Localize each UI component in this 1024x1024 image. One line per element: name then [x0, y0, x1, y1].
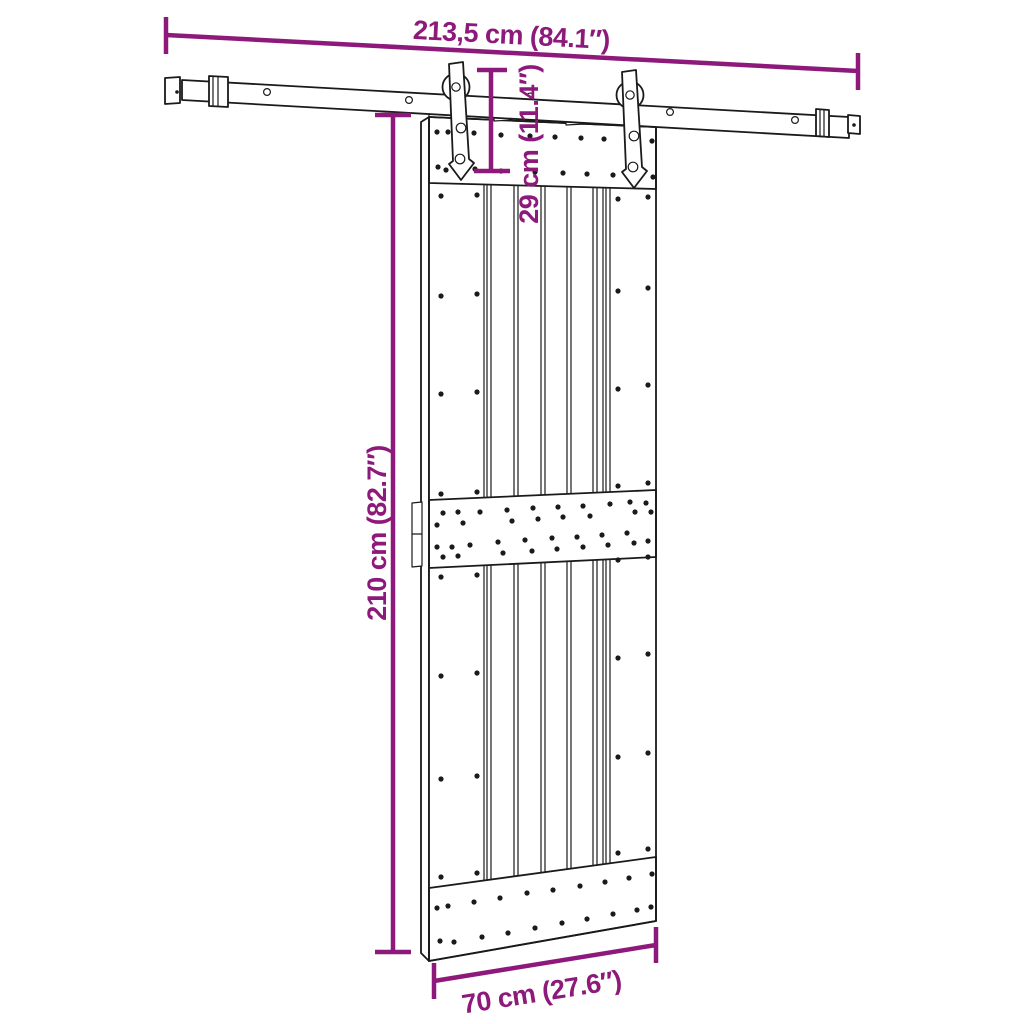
- screw-dot: [535, 516, 540, 521]
- screw-dot: [438, 673, 443, 678]
- screw-dot: [645, 382, 650, 387]
- screw-dot: [605, 542, 610, 547]
- screw-dot: [645, 194, 650, 199]
- screw-dot: [434, 522, 439, 527]
- strap-bolt-icon: [456, 123, 466, 133]
- screw-dot: [497, 895, 502, 900]
- screw-dot: [532, 925, 537, 930]
- dimension-door-height: 210 cm (82.7″): [362, 115, 411, 952]
- screw-dot: [560, 514, 565, 519]
- screw-dot: [645, 480, 650, 485]
- screw-dot: [584, 916, 589, 921]
- screw-dot: [649, 138, 654, 143]
- diagram-canvas: 213,5 cm (84.1″) 29 cm (11.4″) 210 cm (8…: [0, 0, 1024, 1024]
- screw-dot: [438, 776, 443, 781]
- screw-dot: [435, 164, 440, 169]
- screw-dot: [438, 193, 443, 198]
- screw-dot: [474, 489, 479, 494]
- screw-dot: [552, 134, 557, 139]
- screw-dot: [631, 540, 636, 545]
- screw-dot: [560, 170, 565, 175]
- rail-hole: [406, 97, 413, 104]
- screw-dot: [445, 129, 450, 134]
- screw-dot: [648, 509, 653, 514]
- rail-cap-screw-right: [852, 123, 856, 127]
- screw-dot: [434, 129, 439, 134]
- screw-dot: [474, 870, 479, 875]
- screw-dot: [615, 386, 620, 391]
- screw-dot: [471, 130, 476, 135]
- screw-dot: [529, 548, 534, 553]
- screw-dot: [434, 905, 439, 910]
- screw-dot: [474, 670, 479, 675]
- screw-dot: [578, 135, 583, 140]
- sliding-barn-door-dimension-diagram: 213,5 cm (84.1″) 29 cm (11.4″) 210 cm (8…: [0, 0, 1024, 1024]
- strap-bolt-icon: [455, 154, 465, 164]
- screw-dot: [645, 846, 650, 851]
- screw-dot: [474, 192, 479, 197]
- screw-dot: [643, 500, 648, 505]
- screw-dot: [624, 530, 629, 535]
- screw-dot: [455, 553, 460, 558]
- screw-dot: [500, 550, 505, 555]
- axle-bolt-icon: [626, 91, 634, 99]
- screw-dot: [474, 572, 479, 577]
- screw-dot: [467, 542, 472, 547]
- screw-dot: [440, 510, 445, 515]
- screw-dot: [474, 773, 479, 778]
- screw-dot: [634, 907, 639, 912]
- screw-dot: [498, 132, 503, 137]
- screw-dot: [645, 750, 650, 755]
- screw-dot: [649, 871, 654, 876]
- rail-cap-screw-left: [175, 90, 179, 94]
- rail-hole: [264, 89, 271, 96]
- screw-dot: [451, 939, 456, 944]
- door-handle: [412, 502, 422, 567]
- screw-dot: [602, 879, 607, 884]
- screw-dot: [460, 520, 465, 525]
- dimension-door-height-label: 210 cm (82.7″): [362, 445, 392, 621]
- screw-dot: [554, 546, 559, 551]
- screw-dot: [524, 890, 529, 895]
- screw-dot: [509, 518, 514, 523]
- screw-dot: [474, 291, 479, 296]
- screw-dot: [438, 491, 443, 496]
- screw-dot: [443, 167, 448, 172]
- screw-dot: [522, 537, 527, 542]
- screw-dot: [615, 288, 620, 293]
- screw-dot: [477, 509, 482, 514]
- screw-dot: [587, 513, 592, 518]
- screw-dot: [474, 389, 479, 394]
- screw-dot: [645, 538, 650, 543]
- screw-dot: [438, 391, 443, 396]
- screw-dot: [574, 534, 579, 539]
- screw-dot: [455, 509, 460, 514]
- screw-dot: [615, 557, 620, 562]
- dimension-hanger-height-label: 29 cm (11.4″): [514, 64, 544, 224]
- screw-dot: [580, 544, 585, 549]
- rail-hole: [667, 109, 674, 116]
- screw-dot: [599, 532, 604, 537]
- screw-dot: [471, 899, 476, 904]
- rail-hole: [792, 117, 799, 124]
- screw-dot: [648, 904, 653, 909]
- dimension-rail-width: 213,5 cm (84.1″): [166, 15, 858, 90]
- screw-dot: [626, 875, 631, 880]
- screw-dot: [615, 754, 620, 759]
- screw-dot: [438, 874, 443, 879]
- screw-dot: [645, 285, 650, 290]
- screw-dot: [627, 499, 632, 504]
- screw-dot: [632, 509, 637, 514]
- screw-dot: [610, 172, 615, 177]
- screw-dot: [505, 930, 510, 935]
- screw-dot: [580, 503, 585, 508]
- screw-dot: [550, 887, 555, 892]
- screw-dot: [449, 544, 454, 549]
- screw-dot: [577, 883, 582, 888]
- rail-stopper-right: [816, 109, 829, 137]
- screw-dot: [615, 483, 620, 488]
- screw-dot: [601, 136, 606, 141]
- screw-dot: [555, 504, 560, 509]
- screw-dot: [437, 938, 442, 943]
- screw-dot: [479, 934, 484, 939]
- middle-rail-board: [429, 490, 656, 568]
- screw-dot: [438, 574, 443, 579]
- screw-dot: [645, 651, 650, 656]
- screw-dot: [650, 174, 655, 179]
- screw-dot: [645, 554, 650, 559]
- screw-dot: [434, 544, 439, 549]
- screw-dot: [530, 505, 535, 510]
- screw-dot: [495, 539, 500, 544]
- screw-dot: [615, 655, 620, 660]
- screw-dot: [549, 535, 554, 540]
- screw-dot: [615, 196, 620, 201]
- strap-bolt-icon: [629, 131, 639, 141]
- screw-dot: [610, 911, 615, 916]
- axle-bolt-icon: [452, 83, 460, 91]
- screw-dot: [440, 554, 445, 559]
- screw-dot: [504, 507, 509, 512]
- screw-dot: [607, 501, 612, 506]
- screw-dot: [615, 850, 620, 855]
- screw-dot: [445, 903, 450, 908]
- screw-dot: [438, 293, 443, 298]
- strap-bolt-icon: [628, 162, 638, 172]
- screw-dot: [584, 171, 589, 176]
- screw-dot: [559, 920, 564, 925]
